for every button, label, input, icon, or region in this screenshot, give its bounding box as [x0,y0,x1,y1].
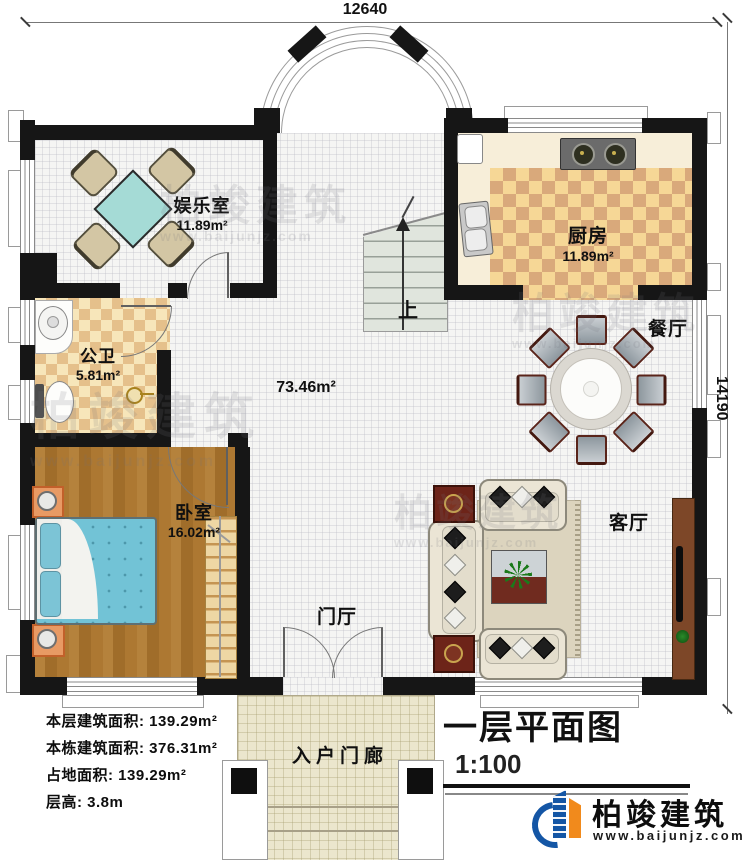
bedroom-right-wall [235,447,250,695]
kitchen-bottom-wall [444,285,523,300]
top-dimension-line [25,22,718,23]
pilaster [707,112,721,144]
toilet-bowl [45,381,74,423]
foyer-label: 门厅 [310,607,364,629]
nightstand-lamp [37,491,57,511]
wardrobe [205,516,237,679]
entertainment-right-wall [263,125,277,298]
kitchen-left-wall [444,118,458,300]
window [20,300,35,345]
side-table-medallion [444,644,463,663]
pillow [40,523,61,569]
exterior-wall-bottom [20,677,67,695]
logo-building-blue-icon [553,790,566,838]
kitchen-label: 厨房 11.89m² [548,226,628,264]
window-sill [62,695,204,708]
dining-chair [517,375,547,406]
hall-area-label: 73.46m² [270,379,342,397]
dining-label: 餐厅 [640,319,696,341]
stair-up-arrow [396,217,410,231]
dining-chair [637,375,667,406]
bathroom-label: 公卫 5.81m² [63,347,133,383]
dining-chair [576,315,607,345]
logo-url: www.baijunjz.com [593,828,745,843]
company-logo: 柏竣建筑 www.baijunjz.com [532,786,742,852]
toilet-tank [35,384,44,418]
basin-drain [47,316,59,328]
sink-basin [464,205,488,229]
refrigerator [457,134,483,164]
wardrobe-rail [219,516,221,677]
floor-plan-drawing: 12640 14190 上 [0,0,750,860]
potted-plant [504,561,532,589]
interior-wall [20,283,120,298]
stove-burner [572,143,595,166]
interior-wall [168,283,187,298]
area-info-block: 本层建筑面积: 139.29m² 本栋建筑面积: 376.31m² 占地面积: … [46,710,266,818]
wall-pier [32,253,57,287]
pillow [40,571,61,617]
top-dimension-label: 12640 [320,1,410,19]
window [20,380,35,423]
bedroom-label: 卧室 16.02m² [153,503,235,540]
bedroom-top-wall [20,433,168,447]
window [692,300,707,408]
window [20,525,35,620]
pilaster [707,263,721,291]
nightstand-lamp [37,629,57,649]
right-dimension-label: 14190 [708,376,730,471]
logo-building-orange-icon [569,798,581,838]
right-dimension-line [727,22,728,714]
bedroom-top-wall [228,433,248,447]
kitchen-bottom-wall [638,285,707,300]
drawing-title-block: 一层平面图 1:100 [443,700,703,795]
entertainment-label: 娱乐室 11.89m² [162,196,242,233]
porch-column [407,768,433,794]
rug-fringe [575,500,580,656]
small-plant [676,630,689,643]
tv [676,546,683,622]
exterior-wall-bottom [383,677,475,695]
porch-label: 入户门廊 [283,746,397,768]
info-floor-area: 本层建筑面积: 139.29m² [46,710,266,731]
side-table-medallion [444,494,463,513]
threshold-floor [283,677,383,695]
info-land-area: 占地面积: 139.29m² [46,764,266,785]
sink-basin [464,228,488,252]
floor-drain-stem [140,393,154,395]
dining-chair [576,435,607,465]
window [508,118,642,133]
page-title: 一层平面图 [443,709,623,747]
info-total-area: 本栋建筑面积: 376.31m² [46,737,266,758]
interior-wall [230,283,277,298]
stove-burner [604,143,627,166]
floor-drain [126,387,143,404]
exterior-wall-top [20,125,270,140]
drawing-scale: 1:100 [455,749,522,779]
window [20,160,35,253]
stairs-up-label: 上 [390,294,426,323]
lazy-susan [583,381,599,397]
pilaster [707,578,721,616]
info-floor-height: 层高: 3.8m [46,791,266,812]
window [67,677,197,695]
living-label: 客厅 [601,513,657,535]
